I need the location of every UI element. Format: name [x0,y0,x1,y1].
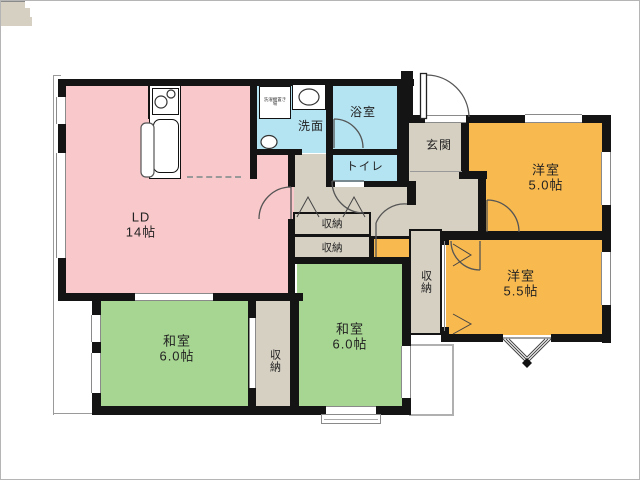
label-bathroom: 浴室 [350,105,376,119]
label-ld: LD14帖 [126,210,156,241]
front-door-leaf [421,74,427,119]
label-toilet: トイレ [346,161,384,175]
bifold-chevron-right-1 [453,244,471,266]
label-western-5-0: 洋室5.0帖 [528,163,563,194]
label-western-5-5: 洋室5.5帖 [503,269,538,300]
doors-and-symbols-layer [1,1,640,480]
floor-plan: 洗濯機置き場 [0,0,640,480]
w50-door [487,200,519,232]
washroom-fixture [261,136,277,149]
label-closet-right: 収納 [420,270,431,294]
label-japanese-left: 和室6.0帖 [159,334,194,365]
wash-basin [299,89,319,105]
label-closet-hall-2: 収納 [322,242,343,254]
refrigerator-space [141,123,154,177]
stove-burner-2 [167,90,175,98]
bath-door [334,119,363,148]
hall-door [376,204,407,257]
label-entrance: 玄関 [426,138,452,152]
stove-burner-1 [155,96,167,108]
label-japanese-center: 和室6.0帖 [332,322,367,353]
ld-door [259,187,291,219]
front-door-arc [427,75,469,117]
bifold-chevron-right-2 [453,314,471,334]
label-closet-left: 収納 [269,349,280,373]
label-washroom: 洗面 [298,119,324,133]
label-closet-hall-1: 収納 [322,218,343,230]
bifold-chevron-up-1 [297,197,319,217]
